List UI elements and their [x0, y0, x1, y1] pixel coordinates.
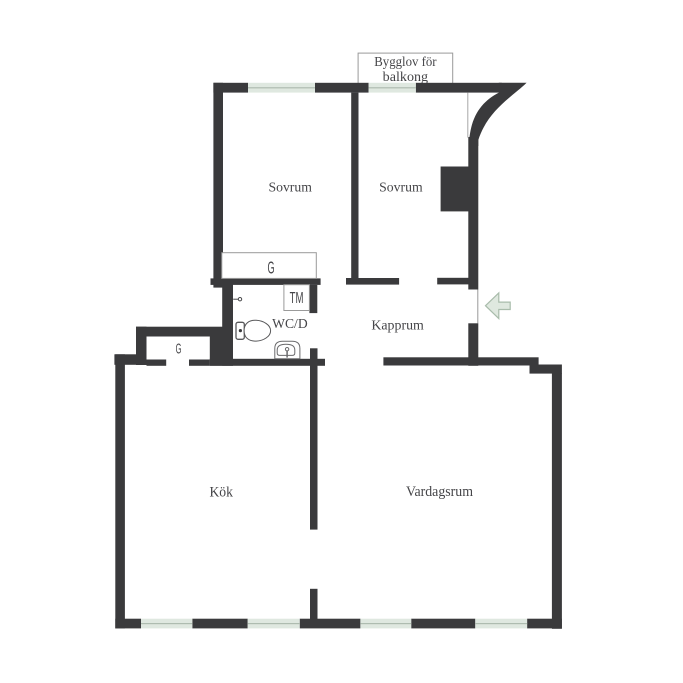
svg-text:Sovrum: Sovrum	[268, 181, 312, 196]
svg-text:balkong: balkong	[383, 69, 429, 84]
svg-text:Bygglov för: Bygglov för	[374, 54, 437, 69]
svg-text:Kapprum: Kapprum	[371, 318, 424, 333]
svg-text:WC/D: WC/D	[272, 317, 308, 332]
svg-text:TM: TM	[290, 288, 304, 306]
svg-text:G: G	[267, 257, 274, 277]
svg-text:G: G	[176, 342, 182, 357]
svg-text:Kök: Kök	[209, 484, 233, 500]
svg-text:Vardagsrum: Vardagsrum	[406, 484, 474, 500]
svg-text:Sovrum: Sovrum	[379, 181, 423, 196]
